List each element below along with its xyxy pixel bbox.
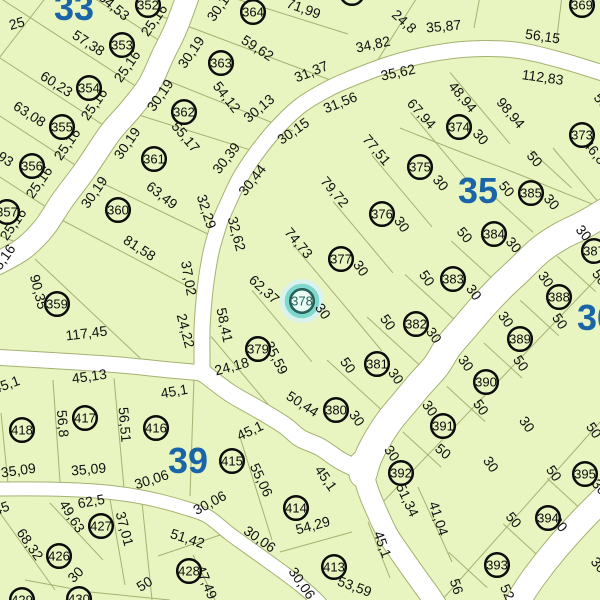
- svg-text:56,8: 56,8: [54, 409, 72, 438]
- svg-text:354: 354: [78, 81, 100, 96]
- svg-text:384: 384: [483, 227, 505, 242]
- svg-text:35,09: 35,09: [70, 460, 107, 479]
- svg-text:361: 361: [143, 152, 165, 167]
- svg-text:33: 33: [54, 0, 94, 28]
- svg-text:35: 35: [458, 170, 498, 211]
- svg-text:357: 357: [0, 205, 18, 220]
- svg-text:356: 356: [21, 159, 43, 174]
- svg-text:380: 380: [325, 403, 347, 418]
- svg-text:360: 360: [107, 203, 129, 218]
- svg-text:389: 389: [509, 332, 531, 347]
- svg-text:379: 379: [247, 342, 269, 357]
- svg-text:414: 414: [285, 501, 307, 516]
- svg-text:418: 418: [11, 423, 33, 438]
- svg-text:429: 429: [11, 593, 33, 600]
- svg-text:35,87: 35,87: [425, 17, 462, 36]
- svg-text:364: 364: [242, 5, 264, 20]
- svg-text:383: 383: [442, 272, 464, 287]
- svg-text:353: 353: [111, 38, 133, 53]
- svg-text:378: 378: [291, 294, 313, 309]
- svg-text:376: 376: [371, 207, 393, 222]
- svg-text:362: 362: [173, 105, 195, 120]
- svg-text:393: 393: [486, 558, 508, 573]
- svg-text:385: 385: [520, 186, 542, 201]
- svg-text:36: 36: [577, 297, 600, 338]
- svg-text:56,51: 56,51: [115, 406, 134, 443]
- svg-text:359: 359: [46, 297, 68, 312]
- svg-text:430: 430: [68, 592, 90, 600]
- svg-text:395: 395: [574, 467, 596, 482]
- svg-text:369: 369: [571, 0, 593, 13]
- svg-text:392: 392: [390, 466, 412, 481]
- svg-text:413: 413: [323, 560, 345, 575]
- svg-text:387: 387: [583, 244, 600, 259]
- svg-text:427: 427: [90, 519, 112, 534]
- svg-text:417: 417: [74, 411, 96, 426]
- svg-text:390: 390: [475, 375, 497, 390]
- svg-text:391: 391: [432, 419, 454, 434]
- svg-text:382: 382: [405, 317, 427, 332]
- svg-text:363: 363: [210, 56, 232, 71]
- svg-text:415: 415: [221, 454, 243, 469]
- svg-text:426: 426: [48, 549, 70, 564]
- svg-text:355: 355: [51, 120, 73, 135]
- svg-text:375: 375: [409, 160, 431, 175]
- svg-text:388: 388: [548, 290, 570, 305]
- svg-text:39: 39: [168, 440, 208, 481]
- svg-text:428: 428: [178, 564, 200, 579]
- svg-text:381: 381: [366, 357, 388, 372]
- svg-text:377: 377: [330, 252, 352, 267]
- svg-text:416: 416: [145, 421, 167, 436]
- svg-text:374: 374: [448, 120, 470, 135]
- svg-text:373: 373: [571, 128, 593, 143]
- svg-text:394: 394: [537, 511, 559, 526]
- svg-text:367: 367: [341, 0, 363, 1]
- svg-text:352: 352: [137, 0, 159, 13]
